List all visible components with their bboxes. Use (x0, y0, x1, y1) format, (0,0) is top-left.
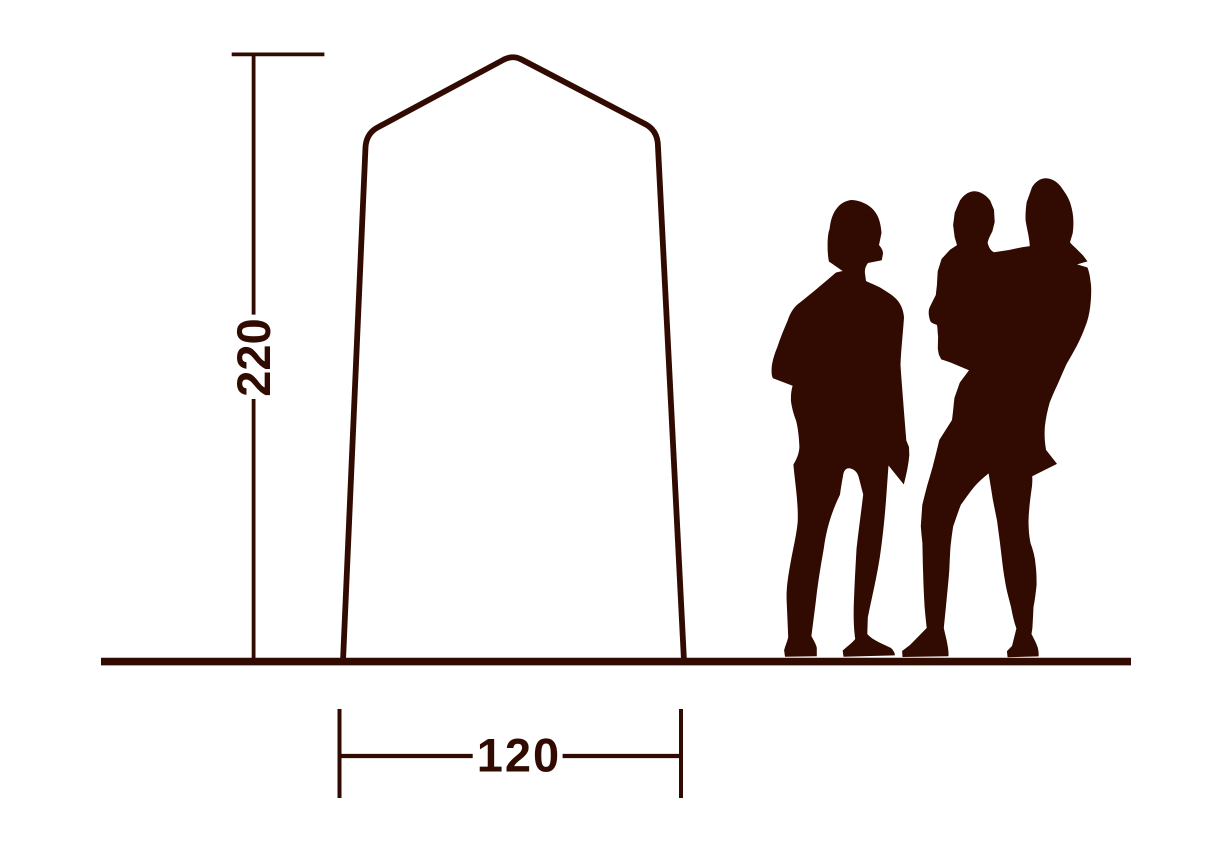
svg-text:120: 120 (477, 729, 561, 782)
svg-text:220: 220 (227, 318, 280, 396)
